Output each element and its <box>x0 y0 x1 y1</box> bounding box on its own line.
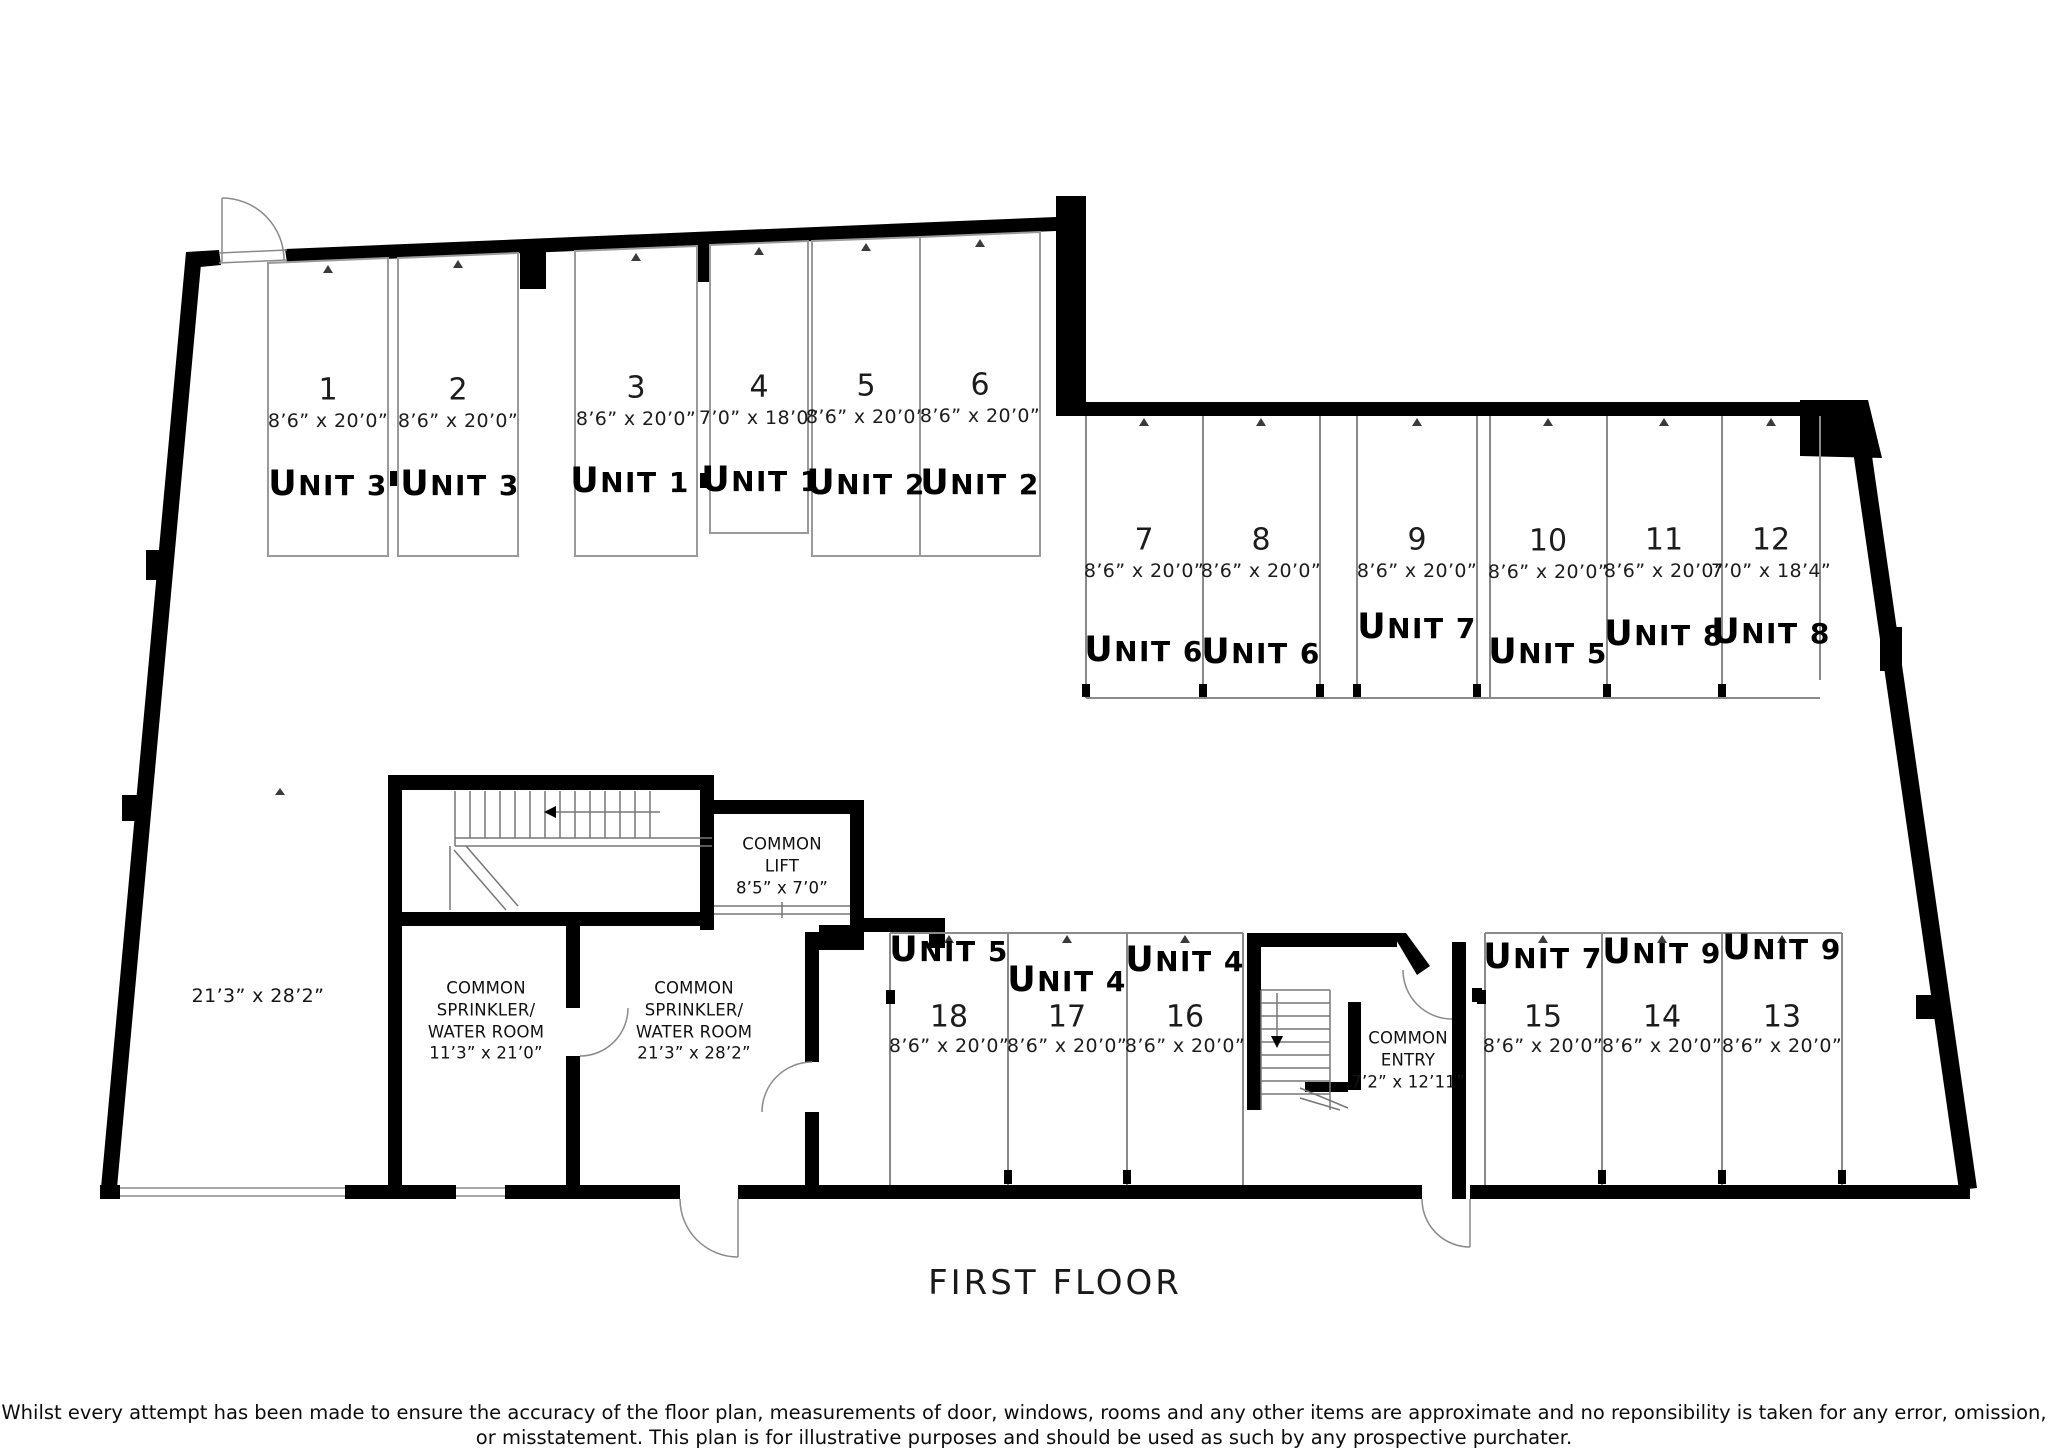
space-4-number: 4 <box>749 370 768 405</box>
space-17-unit: UNIT 4 <box>1007 960 1127 1000</box>
space-16-unit: UNIT 4 <box>1125 940 1245 980</box>
space-10-unit: UNIT 5 <box>1488 632 1608 672</box>
space-14-dims: 8’6” x 20’0” <box>1602 1035 1722 1057</box>
staircase-up <box>450 791 712 910</box>
space-13-dims: 8’6” x 20’0” <box>1722 1035 1842 1057</box>
parking-space-boxes <box>268 232 1040 556</box>
space-9-dims: 8’6” x 20’0” <box>1357 560 1477 582</box>
space-11-dims: 8’6” x 20’0” <box>1604 560 1724 582</box>
sprinkler-room-small-label: COMMON SPRINKLER/ WATER ROOM 11’3” x 21’… <box>428 977 544 1064</box>
space-6-number: 6 <box>970 368 989 403</box>
space-2-number: 2 <box>448 373 467 408</box>
open-area-dims: 21’3” x 28’2” <box>192 985 325 1007</box>
space-11-unit: UNIT 8 <box>1604 614 1724 654</box>
space-2-unit: UNIT 3 <box>400 464 520 504</box>
space-13-unit: UNIT 9 <box>1722 928 1842 968</box>
space-5-dims: 8’6” x 20’0” <box>806 406 926 428</box>
space-17-dims: 8’6” x 20’0” <box>1007 1035 1127 1057</box>
sprinkler-room-large-label: COMMON SPRINKLER/ WATER ROOM 21’3” x 28’… <box>636 977 752 1064</box>
space-15-unit: UNIT 7 <box>1483 937 1603 977</box>
space-3-unit: UNIT 1 <box>570 461 690 501</box>
space-2-dims: 8’6” x 20’0” <box>398 410 518 432</box>
space-17-number: 17 <box>1048 1000 1086 1035</box>
space-8-unit: UNIT 6 <box>1201 632 1321 672</box>
space-12-unit: UNIT 8 <box>1711 612 1831 652</box>
disclaimer-text: Whilst every attempt has been made to en… <box>0 1400 2048 1448</box>
common-entry-label: COMMON ENTRY 7’2” x 12’11” <box>1351 1027 1464 1092</box>
space-4-dims: 7’0” x 18’0” <box>699 407 819 429</box>
space-5-unit: UNIT 2 <box>806 463 926 503</box>
space-11-number: 11 <box>1645 523 1683 558</box>
space-1-number: 1 <box>318 373 337 408</box>
space-16-dims: 8’6” x 20’0” <box>1125 1035 1245 1057</box>
space-18-number: 18 <box>930 1000 968 1035</box>
space-7-unit: UNIT 6 <box>1084 630 1204 670</box>
space-8-dims: 8’6” x 20’0” <box>1201 560 1321 582</box>
space-10-dims: 8’6” x 20’0” <box>1488 561 1608 583</box>
space-4-unit: UNIT 1 <box>701 460 821 500</box>
space-1-dims: 8’6” x 20’0” <box>268 410 388 432</box>
space-15-dims: 8’6” x 20’0” <box>1483 1035 1603 1057</box>
space-14-number: 14 <box>1643 1000 1681 1035</box>
lift-doors <box>714 902 850 918</box>
space-10-number: 10 <box>1529 524 1567 559</box>
space-14-unit: UNIT 9 <box>1602 932 1722 972</box>
space-15-number: 15 <box>1524 1000 1562 1035</box>
common-lift-label: COMMON LIFT 8’5” x 7’0” <box>736 833 828 898</box>
space-7-number: 7 <box>1134 523 1153 558</box>
space-6-unit: UNIT 2 <box>920 463 1040 503</box>
page-title: FIRST FLOOR <box>928 1263 1182 1303</box>
space-12-dims: 7’0” x 18’4” <box>1711 560 1831 582</box>
stair-up-arrowhead <box>544 806 556 818</box>
space-3-dims: 8’6” x 20’0” <box>576 408 696 430</box>
space-13-number: 13 <box>1763 1000 1801 1035</box>
space-9-number: 9 <box>1407 523 1426 558</box>
space-18-unit: UNIT 5 <box>889 930 1009 970</box>
space-16-number: 16 <box>1166 1000 1204 1035</box>
space-3-number: 3 <box>626 371 645 406</box>
space-6-dims: 8’6” x 20’0” <box>920 405 1040 427</box>
space-18-dims: 8’6” x 20’0” <box>889 1035 1009 1057</box>
space-8-number: 8 <box>1251 523 1270 558</box>
space-9-unit: UNIT 7 <box>1357 607 1477 647</box>
space-1-unit: UNIT 3 <box>268 464 388 504</box>
space-7-dims: 8’6” x 20’0” <box>1084 560 1204 582</box>
floor-plan-drawing <box>0 0 2048 1448</box>
space-12-number: 12 <box>1752 523 1790 558</box>
space-5-number: 5 <box>856 369 875 404</box>
floor-plan: 1 8’6” x 20’0” UNIT 3 2 8’6” x 20’0” UNI… <box>0 0 2048 1448</box>
